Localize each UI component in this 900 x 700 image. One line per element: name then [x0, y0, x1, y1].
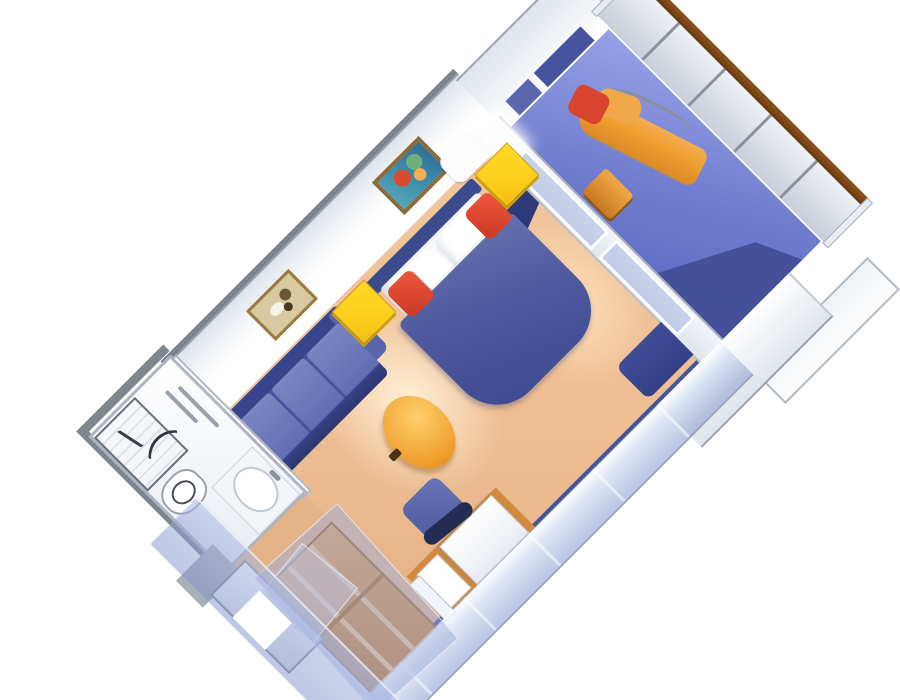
- towel-bar: [165, 390, 199, 424]
- stateroom-3d-render: [0, 0, 900, 700]
- cabin-plan: [134, 24, 827, 700]
- shower-door-mark: [117, 427, 152, 447]
